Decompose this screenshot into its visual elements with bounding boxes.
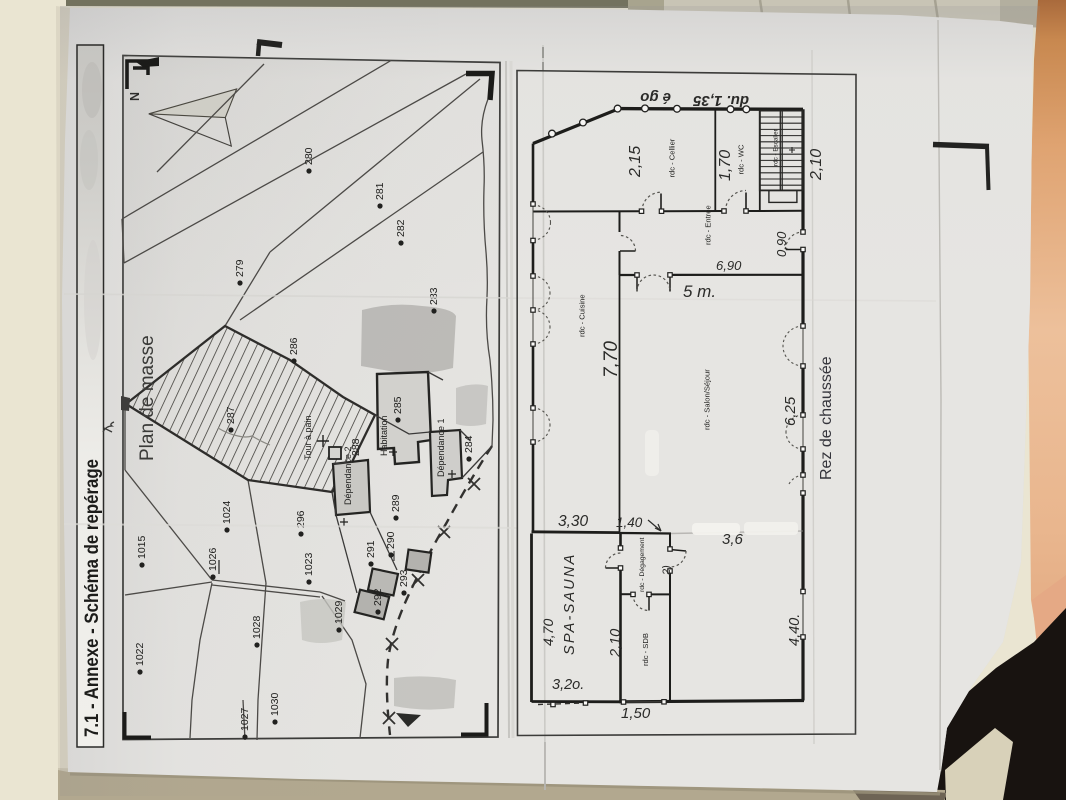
- svg-text:1,40: 1,40: [616, 515, 643, 530]
- svg-text:1026: 1026: [207, 547, 219, 571]
- svg-text:3,2o.: 3,2o.: [552, 677, 584, 693]
- svg-text:rdc - Salon/Séjour: rdc - Salon/Séjour: [703, 369, 712, 430]
- svg-text:SPA-SAUNA: SPA-SAUNA: [562, 552, 578, 655]
- svg-text:293: 293: [398, 569, 410, 587]
- svg-text:Rez de chaussée: Rez de chaussée: [818, 356, 835, 480]
- svg-text:rdc - Cuisine: rdc - Cuisine: [578, 294, 587, 337]
- svg-text:Dépendance 1: Dépendance 1: [436, 418, 446, 477]
- svg-text:4,40.: 4,40.: [787, 614, 803, 646]
- svg-text:284: 284: [463, 435, 475, 453]
- svg-text:289: 289: [390, 494, 402, 512]
- svg-text:1015: 1015: [136, 535, 148, 559]
- svg-text:1,70: 1,70: [717, 150, 734, 181]
- svg-text:1023: 1023: [303, 552, 315, 576]
- svg-text:rdc - Cellier: rdc - Cellier: [668, 138, 677, 177]
- svg-text:0,90: 0,90: [774, 231, 789, 257]
- svg-text:1022: 1022: [134, 642, 146, 666]
- svg-text:rdc - WC: rdc - WC: [737, 144, 746, 174]
- svg-text:5 m.: 5 m.: [683, 282, 716, 301]
- svg-text:rdc - Dégagement: rdc - Dégagement: [639, 537, 646, 592]
- svg-text:du. 1,35: du. 1,35: [692, 92, 749, 109]
- svg-text:286: 286: [288, 337, 300, 355]
- svg-text:Plan de masse: Plan de masse: [137, 335, 158, 461]
- svg-text:292: 292: [372, 588, 384, 606]
- svg-text:7.1 - Annexe - Schéma de repér: 7.1 - Annexe - Schéma de repérage: [81, 459, 103, 737]
- svg-text:1027: 1027: [239, 707, 251, 731]
- svg-text:2): 2): [661, 565, 673, 576]
- svg-text:é go: é go: [640, 89, 671, 106]
- svg-text:287: 287: [225, 406, 237, 424]
- svg-text:1028: 1028: [251, 615, 263, 639]
- svg-text:3,30: 3,30: [558, 513, 589, 530]
- svg-text:N: N: [128, 92, 142, 101]
- svg-text:3,6: 3,6: [722, 531, 744, 548]
- svg-text:Dépendance 2: Dépendance 2: [343, 446, 353, 505]
- svg-text:rdc - SDB: rdc - SDB: [641, 633, 650, 666]
- svg-text:1029: 1029: [333, 600, 345, 624]
- svg-text:Tour à pain: Tour à pain: [303, 415, 313, 460]
- svg-text:2,10: 2,10: [808, 149, 825, 181]
- svg-text:280: 280: [303, 147, 315, 165]
- svg-text:290: 290: [385, 531, 397, 549]
- svg-text:291: 291: [365, 540, 377, 558]
- svg-text:6,90: 6,90: [716, 258, 742, 273]
- svg-text:285: 285: [392, 396, 404, 414]
- svg-text:1024: 1024: [221, 500, 233, 524]
- svg-text:6,25: 6,25: [782, 396, 799, 426]
- svg-text:283: 283: [428, 287, 440, 305]
- svg-text:282: 282: [395, 219, 407, 237]
- svg-text:1,50: 1,50: [621, 705, 651, 722]
- svg-text:279: 279: [234, 259, 246, 277]
- svg-text:rdc - Entrée: rdc - Entrée: [704, 205, 713, 245]
- svg-text:4,70: 4,70: [540, 619, 556, 646]
- svg-text:Habitation: Habitation: [379, 415, 389, 456]
- svg-text:2,15: 2,15: [627, 146, 644, 178]
- svg-text:7,70: 7,70: [601, 341, 622, 378]
- svg-text:281: 281: [374, 182, 386, 200]
- svg-text:2,10: 2,10: [608, 629, 624, 658]
- svg-text:1030: 1030: [269, 692, 281, 716]
- svg-text:rdc - Escalier: rdc - Escalier: [773, 129, 780, 166]
